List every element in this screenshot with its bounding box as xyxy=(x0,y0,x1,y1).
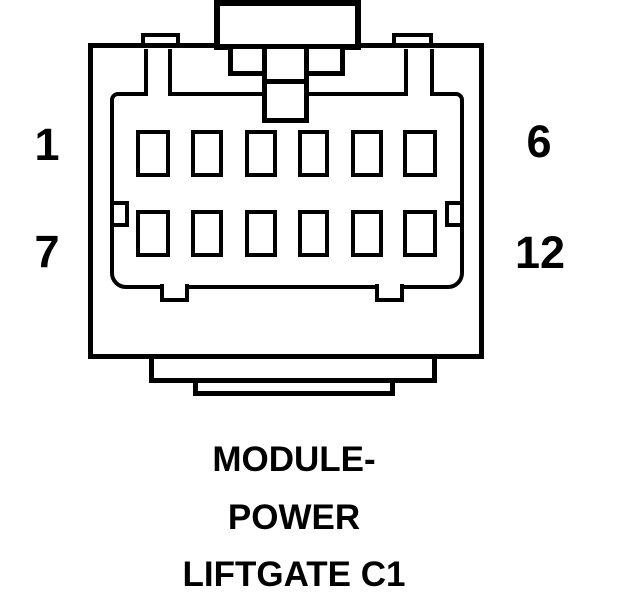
pin-slot-9 xyxy=(245,210,277,257)
side-keyway-left xyxy=(110,201,129,227)
pin-slot-6 xyxy=(403,130,437,177)
caption-line-2: POWER xyxy=(94,500,494,535)
pin-number-top-left: 1 xyxy=(20,122,74,167)
center-lock-tab-ridge xyxy=(263,79,307,84)
pin-slot-7 xyxy=(136,210,170,257)
connector-diagram: 1 6 7 12 MODULE- POWER LIFTGATE C1 xyxy=(0,0,624,600)
pin-slot-11 xyxy=(351,210,383,257)
center-lock-tab xyxy=(262,49,309,123)
latch-right-cap xyxy=(392,33,433,46)
pin-slot-12 xyxy=(403,210,437,257)
side-keyway-right xyxy=(445,201,464,227)
base-step-lower xyxy=(193,382,395,396)
latch-right-body xyxy=(404,49,434,96)
connector-top-lock-tab xyxy=(214,0,361,50)
base-step-upper xyxy=(149,359,437,383)
pin-slot-1 xyxy=(136,130,170,177)
caption-line-1: MODULE- xyxy=(94,442,494,477)
latch-left-cap xyxy=(141,33,180,46)
connector-caption: MODULE- POWER LIFTGATE C1 xyxy=(94,442,494,592)
pin-slot-3 xyxy=(245,130,277,177)
pin-number-top-right: 6 xyxy=(512,119,566,164)
pin-slot-8 xyxy=(191,210,223,257)
pin-slot-4 xyxy=(298,130,329,177)
latch-left-body xyxy=(144,49,172,96)
pin-slot-2 xyxy=(191,130,223,177)
caption-line-3: LIFTGATE C1 xyxy=(94,557,494,592)
pin-slot-5 xyxy=(351,130,383,177)
pin-slot-10 xyxy=(298,210,329,257)
pin-number-bottom-left: 7 xyxy=(20,229,74,274)
bottom-key-tab-right xyxy=(375,284,404,302)
pin-number-bottom-right: 12 xyxy=(513,230,567,275)
bottom-key-tab-left xyxy=(160,284,189,302)
